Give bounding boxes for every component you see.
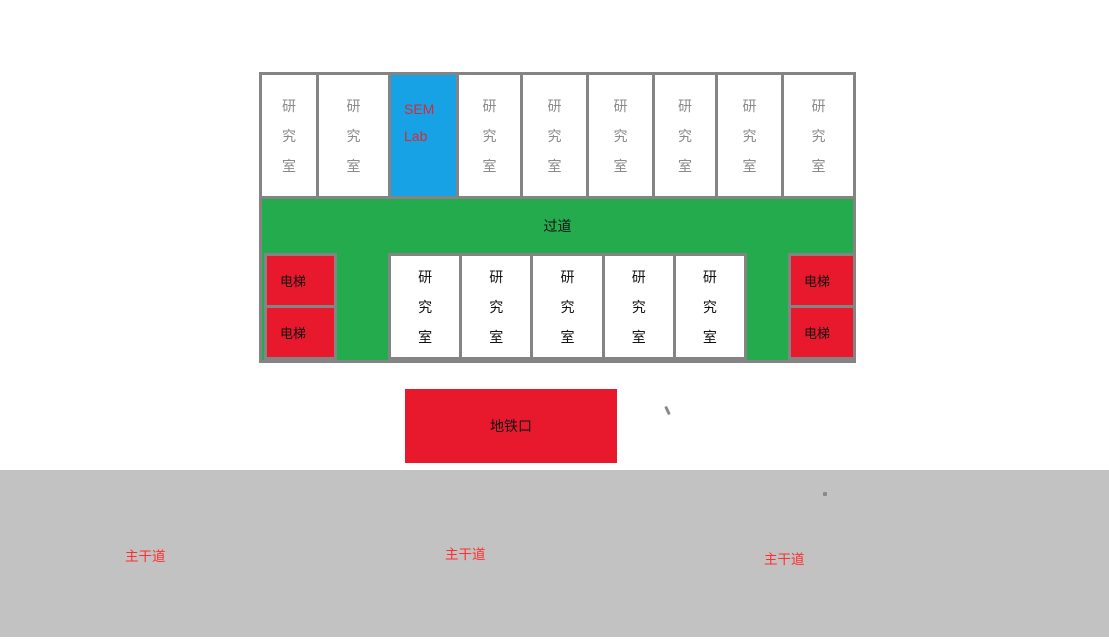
elevator-box: 电梯 (791, 256, 853, 305)
research-room-cell: 研究室 (459, 75, 520, 196)
research-room-cell: 研究室 (718, 75, 781, 196)
corridor: 过道 (262, 199, 853, 252)
research-room-label: 研究室 (418, 262, 433, 352)
sem-lab-cell: SEM Lab (391, 75, 456, 196)
building: 研究室 研究室 SEM Lab 研究室 研究室 研究室 研究室 研究室 研究室 … (259, 72, 856, 363)
elevator-box: 电梯 (267, 256, 334, 305)
research-room-label: 研究室 (482, 91, 497, 181)
corridor-label: 过道 (544, 216, 572, 236)
main-road-label: 主干道 (445, 543, 486, 563)
research-room-cell: 研究室 (523, 75, 586, 196)
dot-artifact (823, 492, 827, 496)
research-room-label: 研究室 (613, 91, 628, 181)
research-room-cell: 研究室 (262, 75, 316, 196)
research-room-label: 研究室 (547, 91, 562, 181)
elevator-box: 电梯 (267, 308, 334, 357)
subway-entrance: 地铁口 (405, 389, 617, 463)
cursor-artifact (664, 406, 671, 415)
elevator-stack-right: 电梯 电梯 (788, 253, 856, 360)
research-room-cell: 研究室 (676, 256, 744, 357)
research-room-label: 研究室 (742, 91, 757, 181)
research-room-cell: 研究室 (589, 75, 652, 196)
elevator-stack-left: 电梯 电梯 (264, 253, 337, 360)
research-room-label: 研究室 (631, 262, 646, 352)
research-room-label: 研究室 (282, 91, 297, 181)
corridor-and-courtyard: 过道 电梯 电梯 研究室 研究室 研究室 研究室 研究室 电梯 电 (262, 199, 853, 360)
research-room-cell: 研究室 (391, 256, 459, 357)
research-room-label: 研究室 (560, 262, 575, 352)
sem-lab-label-line1: SEM (404, 96, 456, 123)
research-room-label: 研究室 (703, 262, 718, 352)
research-room-cell: 研究室 (605, 256, 673, 357)
research-room-label: 研究室 (678, 91, 693, 181)
main-road-label: 主干道 (764, 548, 805, 568)
research-room-cell: 研究室 (533, 256, 601, 357)
research-room-cell: 研究室 (784, 75, 853, 196)
elevator-box: 电梯 (791, 308, 853, 357)
main-road-label: 主干道 (125, 545, 166, 565)
building-top-row: 研究室 研究室 SEM Lab 研究室 研究室 研究室 研究室 研究室 研究室 (262, 75, 853, 199)
research-room-label: 研究室 (489, 262, 504, 352)
research-room-label: 研究室 (811, 91, 826, 181)
research-room-label: 研究室 (346, 91, 361, 181)
research-room-cell: 研究室 (655, 75, 715, 196)
research-room-cell: 研究室 (462, 256, 530, 357)
sem-lab-label-line2: Lab (404, 123, 456, 150)
main-road (0, 470, 1109, 637)
subway-entrance-label: 地铁口 (490, 416, 532, 436)
building-bottom-rooms: 研究室 研究室 研究室 研究室 研究室 (388, 253, 747, 360)
research-room-cell: 研究室 (319, 75, 388, 196)
